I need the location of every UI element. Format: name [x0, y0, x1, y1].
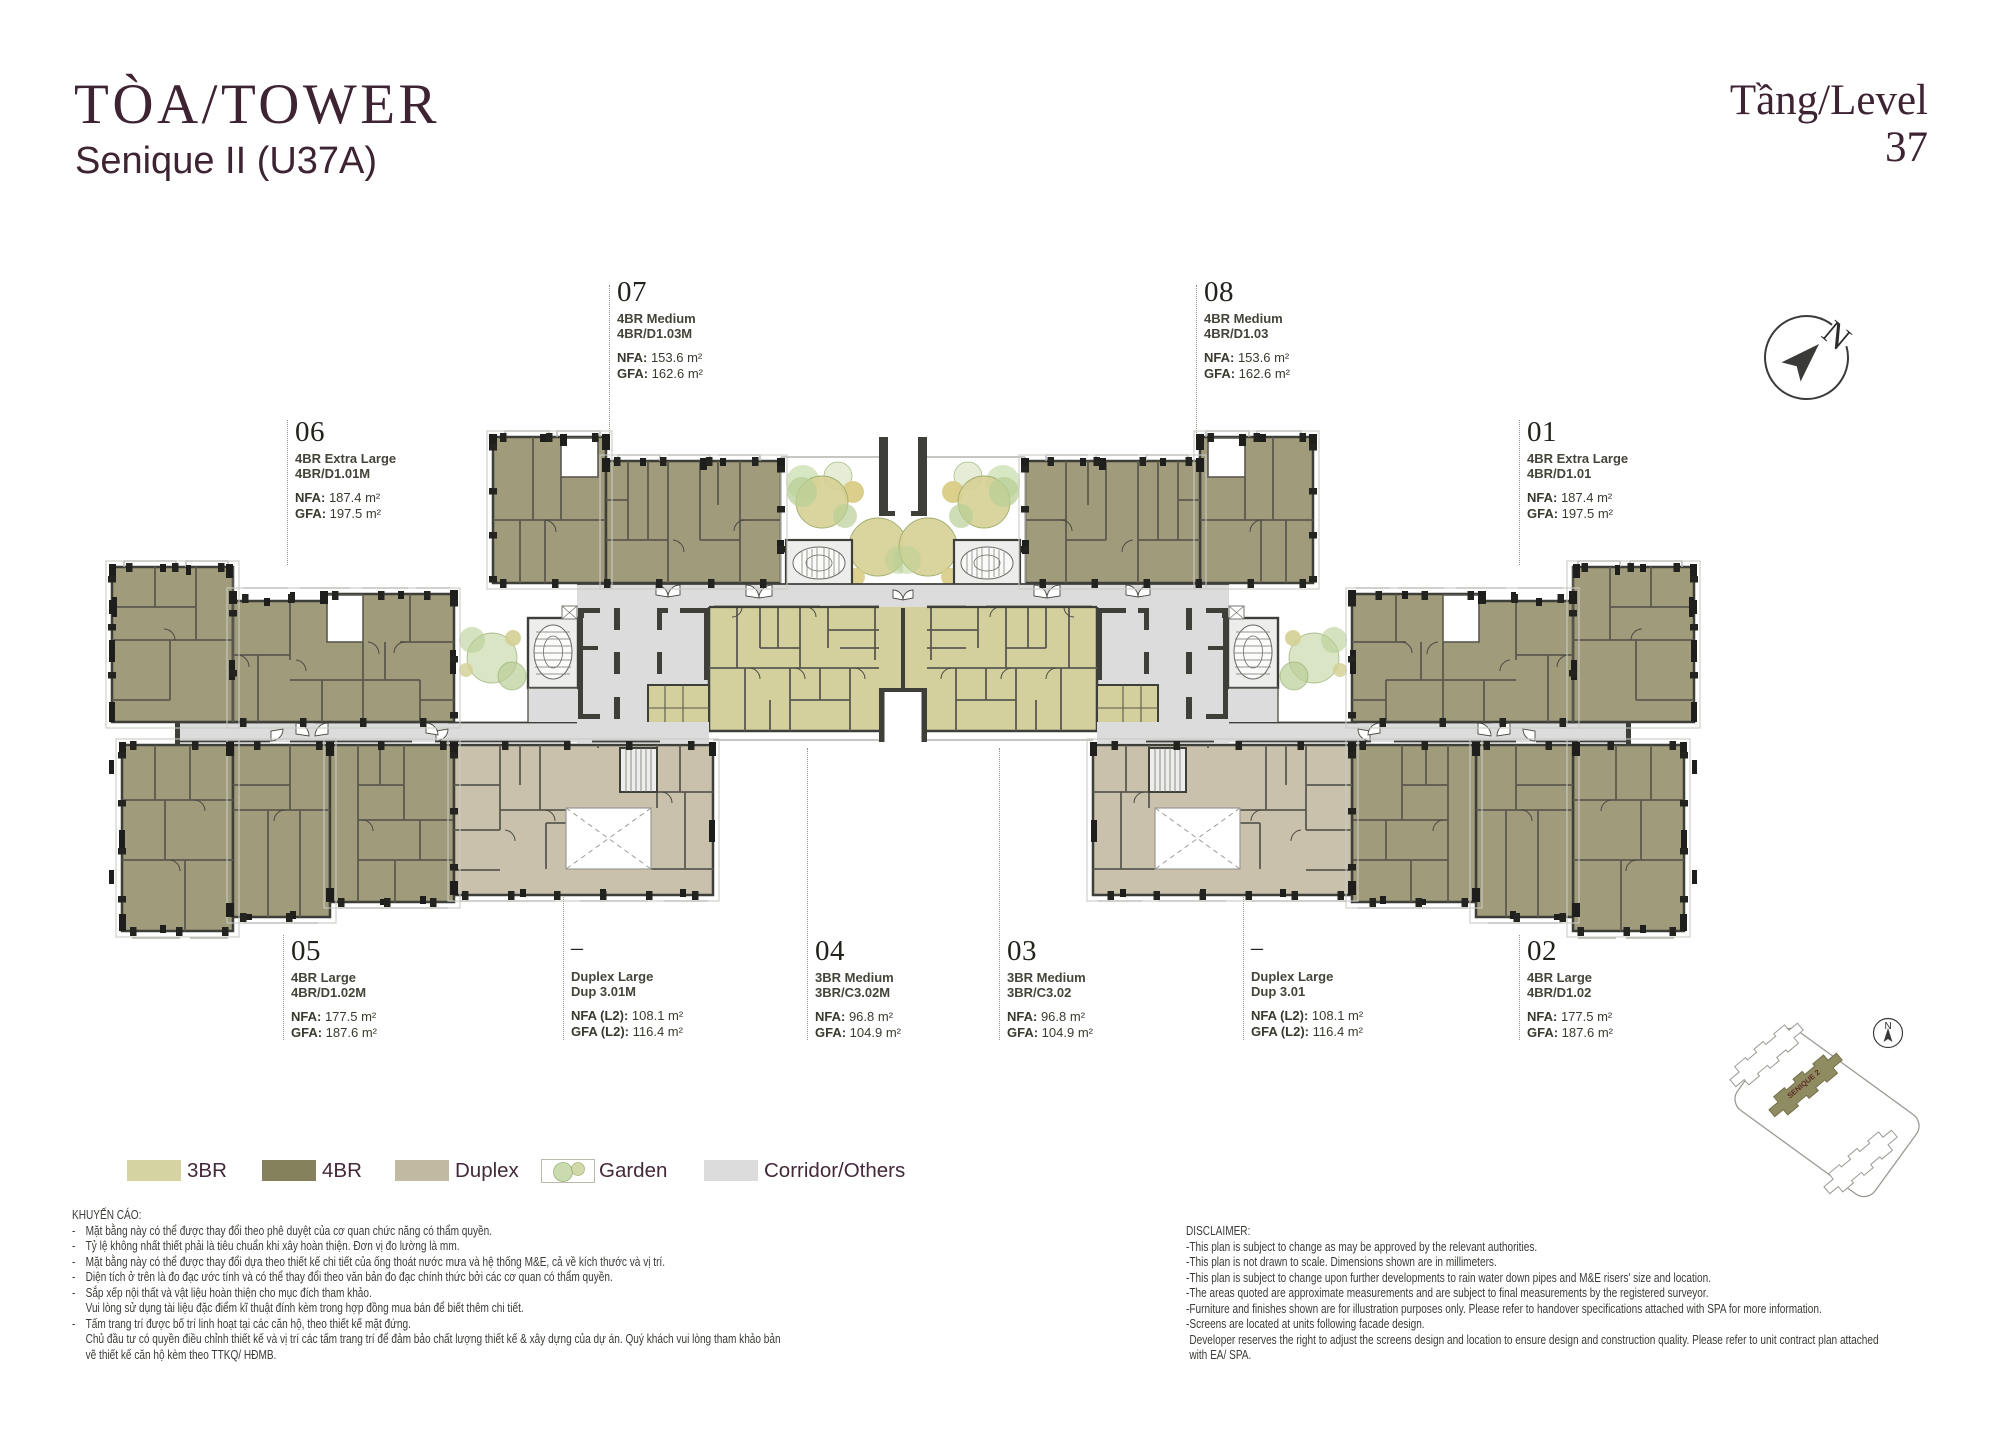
svg-text:N: N	[1885, 1021, 1892, 1032]
svg-text:N: N	[1815, 314, 1858, 358]
